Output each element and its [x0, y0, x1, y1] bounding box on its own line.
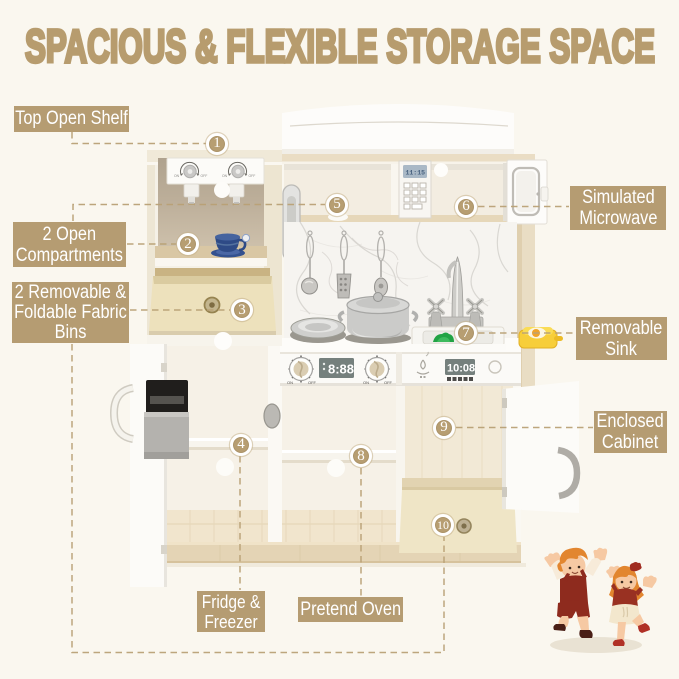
svg-text:OFF: OFF: [384, 380, 393, 385]
svg-text:10:08: 10:08: [447, 363, 475, 375]
svg-text:OFF: OFF: [249, 174, 256, 178]
svg-text:ON: ON: [222, 174, 228, 178]
svg-text:ON: ON: [174, 174, 180, 178]
svg-text:ON: ON: [287, 380, 293, 385]
svg-text:OFF: OFF: [201, 174, 208, 178]
svg-text:11:15: 11:15: [406, 170, 426, 177]
svg-text:8:88: 8:88: [328, 362, 354, 377]
svg-text:OFF: OFF: [308, 380, 317, 385]
svg-text:ON: ON: [363, 380, 369, 385]
